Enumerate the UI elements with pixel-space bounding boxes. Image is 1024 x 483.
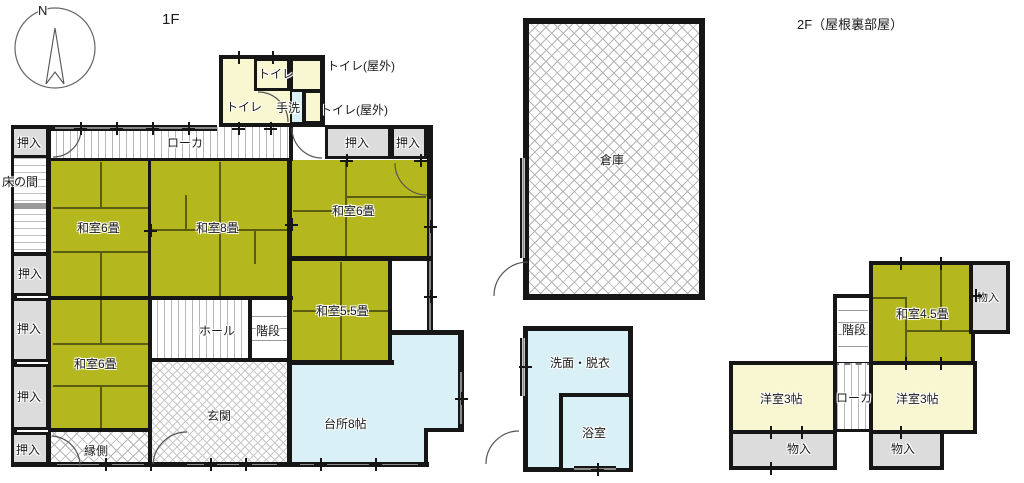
compass-icon — [10, 2, 120, 102]
label-oshiire-3: 押入 — [17, 322, 41, 336]
label-kitchen: 台所8帖 — [324, 417, 367, 431]
label-rouka-2f: ローカ — [836, 391, 872, 405]
label-tearai: 手洗 — [276, 101, 300, 115]
label-monoiri-2f-sw: 物入 — [787, 442, 811, 456]
wall-tick — [152, 122, 154, 135]
wall-tick — [940, 257, 942, 270]
wall-tick — [770, 462, 772, 475]
label-washitsu55: 和室5.5畳 — [316, 304, 369, 318]
label-yokushitsu: 浴室 — [582, 426, 606, 440]
label-washitsu8: 和室8畳 — [196, 221, 239, 235]
label-oshiire-5: 押入 — [16, 443, 40, 457]
label-oshiire-7: 押入 — [396, 136, 420, 150]
label-stairs-1f: 階段 — [256, 324, 280, 338]
label-oshiire-2: 押入 — [18, 267, 42, 281]
window-genkan — [187, 462, 277, 467]
label-toilet-outdoor-n: トイレ(屋外) — [327, 59, 395, 73]
wall-tick — [238, 122, 240, 135]
wall-tick — [900, 257, 902, 270]
wall-tick — [320, 458, 322, 471]
floor1-title: 1F — [162, 13, 180, 27]
wall-tick — [245, 458, 247, 471]
floor2-title: 2F（屋根裏部屋） — [797, 18, 903, 32]
label-tokonoma: 床の間 — [2, 175, 38, 189]
label-washitsu45-2f: 和室4.5畳 — [896, 307, 949, 321]
label-toilet-outdoor-s: トイレ(屋外) — [320, 103, 388, 117]
label-monoiri-2f-se: 物入 — [891, 442, 915, 456]
wall-tick — [597, 463, 599, 476]
wall-tick — [525, 360, 527, 373]
wall-tick — [430, 290, 432, 303]
wall-tick — [940, 357, 942, 370]
label-washitsu6-ne: 和室6畳 — [332, 204, 375, 218]
label-monoiri-2f-n: 物入 — [977, 291, 999, 305]
window-east — [427, 199, 433, 331]
wall-tick — [116, 122, 118, 135]
window-souko — [520, 158, 527, 258]
wall-tick — [238, 51, 240, 64]
wall-tick — [770, 426, 772, 439]
wall-tick — [105, 458, 107, 471]
wall-tick — [272, 51, 274, 64]
label-souko: 倉庫 — [600, 153, 624, 167]
wall-tick — [375, 458, 377, 471]
wall-tick — [461, 392, 463, 405]
closet-monoiri-2f-sw — [729, 430, 837, 470]
label-toilet-inner: トイレ — [258, 67, 294, 81]
wall-tick — [150, 224, 152, 237]
wall-tick — [420, 154, 422, 167]
label-oshiire-1: 押入 — [17, 136, 41, 150]
wall-tick — [905, 357, 907, 370]
wall-tick — [975, 289, 977, 302]
wall-tick — [430, 220, 432, 233]
label-engawa: 縁側 — [84, 444, 108, 458]
label-stairs-2f: 階段 — [842, 323, 866, 337]
wall-tick — [80, 122, 82, 135]
label-yoshitsu-w: 洋室3帖 — [760, 392, 803, 406]
wall-tick — [210, 458, 212, 471]
label-washitsu6-nw: 和室6畳 — [77, 221, 120, 235]
wall-tick — [270, 122, 272, 135]
wall-tick — [346, 154, 348, 167]
floor-plan-canvas: N 1F 2F（屋根裏部屋） — [0, 0, 1024, 483]
label-hall: ホール — [199, 324, 235, 338]
label-senmen: 洗面・脱衣 — [550, 356, 610, 370]
compass-north-label: N — [38, 4, 47, 18]
label-rouka-1f: ローカ — [167, 136, 203, 150]
wall-tick — [900, 426, 902, 439]
label-oshiire-4: 押入 — [17, 390, 41, 404]
label-toilet-main: トイレ — [226, 100, 262, 114]
wall-tick — [801, 426, 803, 439]
label-genkan: 玄関 — [207, 409, 231, 423]
label-oshiire-6: 押入 — [345, 136, 369, 150]
wall-tick — [291, 218, 293, 231]
wall-tick — [150, 458, 152, 471]
label-washitsu6-sw: 和室6畳 — [74, 357, 117, 371]
room-toilet-outdoor-n — [290, 58, 323, 92]
wall-tick — [188, 122, 190, 135]
label-yoshitsu-e: 洋室3帖 — [896, 392, 939, 406]
